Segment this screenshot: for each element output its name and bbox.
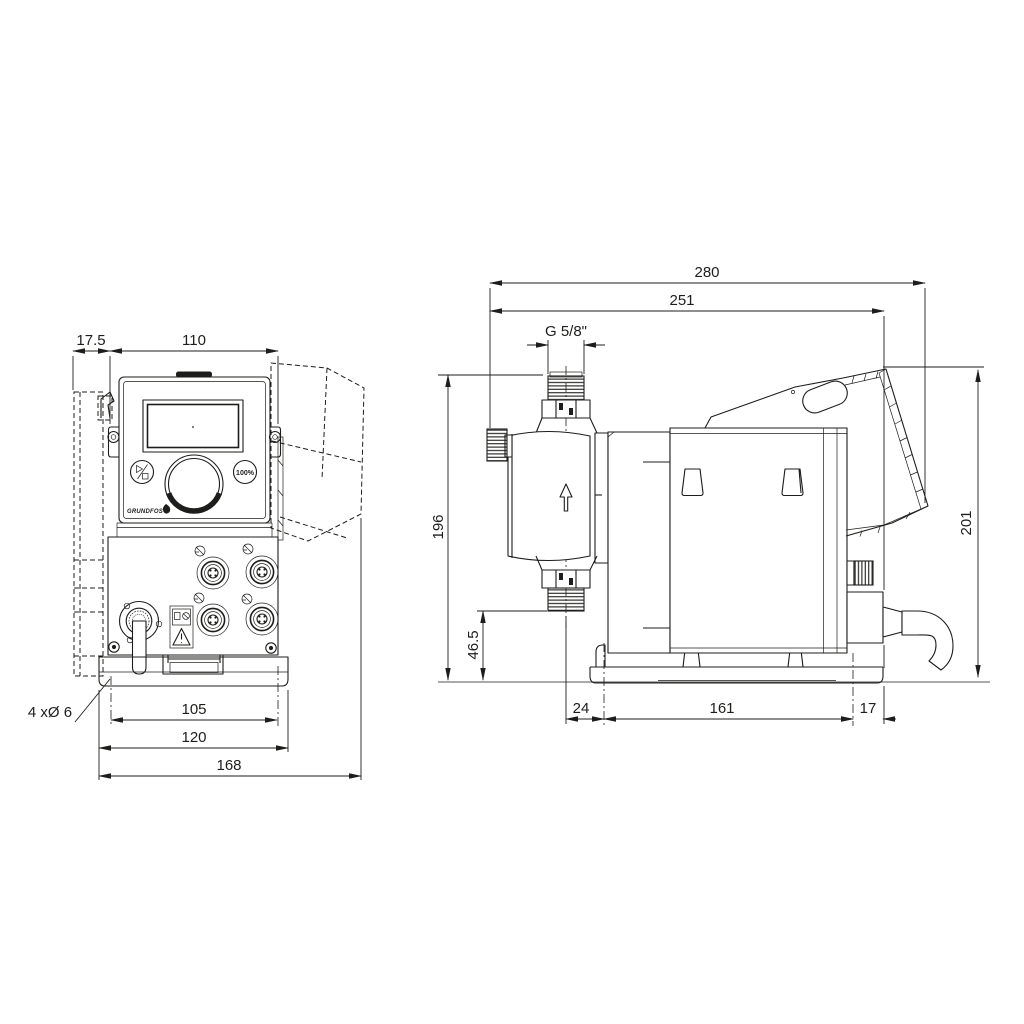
dim-center-to-hole: 24 — [573, 700, 590, 717]
bottom-union-nut — [542, 570, 590, 588]
priming-knob[interactable] — [487, 429, 507, 461]
dim-hole-spacing: 105 — [181, 701, 206, 718]
dim-depth-to-cable-gland: 251 — [669, 292, 694, 309]
control-panel: 100% GRUNDFOS — [108, 372, 281, 538]
dosing-pump-dimension-drawing: 100% GRUNDFOS — [0, 0, 1024, 1024]
power-cable — [902, 611, 953, 670]
top-union-nut — [542, 400, 590, 418]
top-thread — [548, 376, 584, 401]
wheel-side-profile — [799, 378, 851, 417]
side-view: 280 251 G 5/8" 196 46.5 201 24 — [430, 264, 990, 726]
hundred-percent-label: 100% — [236, 470, 255, 477]
motor-housing — [608, 428, 847, 653]
technical-drawing-page: 100% GRUNDFOS — [0, 0, 1024, 1024]
dim-height-to-panel: 201 — [958, 510, 975, 535]
dim-housing-width: 110 — [182, 332, 206, 349]
dim-connection-height: 46.5 — [465, 630, 482, 659]
threaded-stud — [854, 561, 873, 585]
front-view: 100% GRUNDFOS — [28, 332, 364, 780]
dim-hole-to-edge: 17 — [860, 700, 877, 717]
drum-dashed-outline — [271, 363, 364, 541]
dosing-head — [487, 366, 608, 628]
base-plate-side — [590, 643, 885, 726]
dim-height-to-connection: 196 — [430, 514, 447, 539]
dim-thread-size: G 5/8" — [545, 323, 587, 340]
motor-cable — [133, 621, 147, 674]
brand-name: GRUNDFOS — [127, 509, 163, 515]
panel-top-tab — [176, 372, 212, 378]
cable-gland — [847, 561, 953, 670]
gland-taper — [883, 607, 902, 637]
dim-overall-depth: 280 — [694, 264, 719, 281]
bottom-thread — [548, 588, 584, 611]
label-mounting-holes: 4 xØ 6 — [28, 704, 72, 721]
dim-offset: 17.5 — [76, 332, 105, 349]
dim-hole-spacing-depth: 161 — [709, 700, 734, 717]
click-wheel[interactable] — [165, 455, 223, 513]
dim-plate-width: 120 — [181, 729, 206, 746]
dim-overall-width: 168 — [216, 757, 241, 774]
